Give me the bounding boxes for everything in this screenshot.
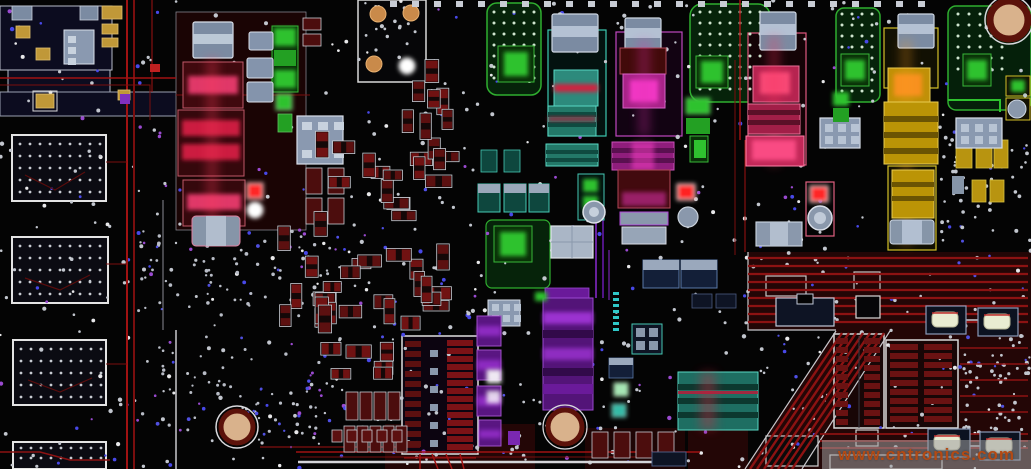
via-field [490,112,494,116]
via-field [777,335,779,337]
chip-pad [346,392,358,420]
via-field [998,403,1002,407]
via-field [616,22,619,25]
capacitor-top [529,184,549,193]
ic-pad [989,136,997,144]
via-field [713,119,716,122]
via-field [733,238,737,242]
via-field [1013,393,1015,395]
via-field [402,262,406,266]
via-field [383,28,386,31]
via-grid [29,269,32,272]
via-grid [503,22,506,25]
via-field [538,401,541,404]
via-field [635,388,638,391]
via-field [162,365,165,368]
via-field [194,416,197,419]
via-grid [709,33,712,36]
ic-pin-pad [836,356,848,362]
via-field [822,80,825,83]
ic-pin-pad [864,374,880,380]
via-field [942,239,945,242]
via-field [469,224,472,227]
via-field [940,220,944,224]
via-grid [513,22,516,25]
transistor-pad-green [274,70,296,88]
via-grid [89,143,92,146]
via-field [600,340,604,344]
via-field [684,145,687,148]
via-field [842,1,845,4]
via-field [301,257,305,261]
via-field [554,176,557,179]
via-field [149,272,153,276]
via-grid [99,245,102,248]
ic-pin-pad [864,365,880,371]
via-field [474,288,477,291]
via-field [991,354,994,357]
glow [477,326,501,336]
via-field [138,81,142,85]
via-grid [729,33,732,36]
capacitor-highlight [206,216,226,246]
via-grid [979,13,982,16]
chip-pad [362,430,372,442]
via-field [283,430,285,432]
silkscreen-mark [613,292,619,295]
th-pad [403,5,419,21]
via-field [42,307,46,311]
via-field [172,361,175,364]
via-field [209,281,212,284]
capacitor-highlight [760,24,796,35]
via-field [175,242,177,244]
via-field [404,347,407,350]
via-field [638,384,640,386]
via-grid [19,257,22,260]
via-field [236,271,240,275]
via-field [604,60,607,63]
via-field [324,91,328,95]
via-grid [19,167,22,170]
via-field [957,261,960,264]
via-grid [30,348,33,351]
via-grid [871,57,874,60]
via-field [977,205,980,208]
via-field [455,16,458,19]
via-field [240,337,243,340]
via-field [1018,341,1021,344]
chip-component-pad [393,212,401,220]
via-field [324,412,326,414]
ic-pin-pad [890,398,918,404]
via-field [163,182,166,185]
via-field [137,309,140,312]
via-field [992,301,995,304]
via-field [1014,190,1018,194]
via-grid [90,396,93,399]
silkscreen-mark [613,310,619,313]
chip-component-pad [421,114,430,123]
via-grid [69,245,72,248]
via-field [942,114,945,117]
via-field [268,414,272,418]
via-field [965,372,968,375]
via-grid [40,447,43,450]
ic-pin-pad [447,356,473,362]
glow [622,192,666,206]
via-field [156,422,160,426]
glow [477,360,501,370]
via-field [471,309,475,313]
via-grid [30,447,33,450]
via-grid [699,22,702,25]
ic-pin-pad [890,407,918,413]
via-field [432,266,435,269]
via-grid [968,46,971,49]
via-field [96,70,99,73]
via-field [178,188,181,191]
chip-component-pad [421,130,430,139]
via-field [328,247,331,250]
chip-component-pad [334,142,342,153]
via-field [964,418,967,421]
via-field [685,4,688,7]
via-field [771,0,775,3]
ic-pin-pad [864,356,880,362]
via-field [542,276,546,280]
ic-pad [851,124,859,132]
via-field [835,300,839,304]
via-field [172,352,174,354]
via-field [207,293,209,295]
via-field [622,341,626,345]
via-field [214,13,218,17]
via-grid [89,257,92,260]
via-field [466,311,468,313]
via-field [920,413,924,417]
via-field [222,366,225,369]
via-field [231,356,234,359]
via-grid [79,191,82,194]
via-field [823,247,827,251]
via-grid [749,33,752,36]
via-grid [70,457,73,460]
via-field [1025,359,1027,361]
via-field [797,200,800,203]
via-field [212,257,215,260]
via-field [687,65,690,68]
via-field [711,210,715,214]
via-field [801,104,805,108]
via-field [871,100,874,103]
via-field [791,186,793,188]
capacitor-highlight [770,222,788,246]
via-field [260,388,262,390]
chip-component-pad [372,256,380,266]
capacitor-stripe [543,384,593,394]
ic-pad [514,304,521,311]
via-grid [69,281,72,284]
chip-component-pad [414,94,424,101]
chip-component-pad [443,122,452,129]
ic-pin-pad [836,401,848,407]
ic-pin-pad [405,351,421,357]
via-grid [39,293,42,296]
via-field [742,334,746,338]
via-field [73,313,76,316]
via-field [35,465,38,468]
via-field [153,128,156,131]
test-pad [487,370,501,383]
ground-plane-navy [0,92,206,116]
via-field [875,22,878,25]
capacitor-cream [932,312,958,327]
via-field [438,196,441,199]
via-field [945,82,948,85]
via-field [441,201,444,204]
via-field [40,22,43,25]
via-grid [99,293,102,296]
via-field [298,411,302,415]
via-field [1027,367,1030,370]
chip-component-pad [385,368,391,378]
edge-pad [390,1,397,7]
via-grid [50,384,53,387]
via-field [136,64,140,68]
via-field [150,259,153,262]
via-field [833,66,836,69]
silkscreen-mark [613,298,619,301]
ic-pad [334,122,344,130]
via-field [278,422,281,425]
via-field [947,220,950,223]
via-field [141,412,144,415]
via-field [418,249,422,253]
via-grid [871,46,874,49]
via-grid [979,24,982,27]
ic-pad [825,136,833,144]
chip-component-pad [429,91,440,97]
via-field [239,395,242,398]
via-field [220,313,223,316]
via-field [452,206,455,209]
silkscreen-mark [613,304,619,307]
via-field [264,172,267,175]
via-field [990,427,993,430]
chip-component-pad [387,249,396,260]
chip-pad-yellow [972,180,986,202]
chip-component-pad [382,194,392,202]
light-streak [638,40,650,136]
via-grid [20,348,23,351]
via-field [116,442,120,446]
via-grid [841,46,844,49]
capacitor-top [478,184,500,193]
chip-component-pad [346,142,354,153]
via-field [274,418,277,421]
capacitor-cream [984,314,1010,329]
via-field [140,277,143,280]
capacitor-top [643,260,679,270]
via-grid [729,22,732,25]
transistor-pad-green [967,60,987,80]
via-field [1020,166,1023,169]
via-field [98,374,102,378]
via-field [996,417,999,420]
via-field [165,280,167,282]
via-field [490,74,493,77]
via-field [992,229,995,232]
via-field [440,390,444,394]
via-grid [30,384,33,387]
ic-pin-pad [836,365,848,371]
via-grid [523,11,526,14]
via-field [1009,337,1013,341]
ic-pin-pad [890,389,918,395]
via-field [318,443,320,445]
via-field [373,325,376,328]
capacitor-stripe [892,182,934,187]
via-field [354,285,357,288]
via-field [979,364,982,367]
via-grid [493,11,496,14]
ic-pad [649,341,658,350]
ic-pin-pad [405,411,421,417]
ic-pin-pad [405,381,421,387]
via-field [142,230,144,232]
via-field [234,299,237,302]
via-field [10,27,14,31]
ic-pin-pad [447,412,473,418]
via-grid [90,384,93,387]
via-grid [40,396,43,399]
transistor-pad-green [274,50,296,66]
chip-component-pad [415,171,424,179]
edge-pad [676,1,683,7]
via-field [144,307,146,309]
chip-pad [392,430,402,442]
via-field [444,82,447,85]
via-grid [60,372,63,375]
capacitor-stripe [884,116,938,122]
via-field [744,321,747,324]
via-field [311,372,314,375]
via-field [296,403,299,406]
ic-pad [636,341,645,350]
ic-pad [68,36,76,43]
via-field [783,350,787,354]
via-field [316,283,318,285]
ic-pin-pad [864,347,880,353]
capacitor-stripe [554,84,598,92]
ic-pad [975,136,983,144]
via-field [816,262,818,264]
via-field [783,343,785,345]
via-grid [60,447,63,450]
via-field [193,263,196,266]
via-field [301,249,304,252]
green-pad [686,98,710,114]
via-field [817,336,819,338]
via-grid [89,293,92,296]
ic-pin-pad [405,361,421,367]
via-field [961,210,965,214]
test-point [678,207,698,227]
ic-pin-pad [405,401,421,407]
via-field [464,165,467,168]
via-field [57,462,60,465]
capacitor-pink [748,104,800,134]
via-field [1025,152,1029,156]
via-field [940,178,943,181]
via-field [307,379,310,382]
via-grid [29,143,32,146]
via-grid [79,179,82,182]
edge-pad [434,1,441,7]
via-field [1012,344,1015,347]
via-grid [19,179,22,182]
via-field [677,317,681,321]
via-field [279,402,282,405]
via-field [139,241,141,243]
via-field [994,365,996,367]
via-field [257,402,260,405]
via-field [136,419,139,422]
via-field [123,281,126,284]
via-field [219,285,222,288]
via-field [701,185,704,188]
ic-pin-pad [864,419,880,425]
chip-pad [328,198,344,224]
via-field [139,244,143,248]
via-field [267,340,271,344]
chip-pad [303,34,321,46]
via-field [1019,334,1023,338]
via-field [938,126,941,129]
via-grid [69,257,72,260]
via-field [440,282,443,285]
via-grid [871,90,874,93]
via-grid [957,57,960,60]
via-field [424,384,428,388]
pad-gold [102,38,118,47]
chip-component-pad [279,241,290,249]
via-field [807,362,810,365]
via-field [314,427,317,430]
via-field [552,2,556,6]
via-field [964,353,967,356]
via-field [142,268,146,272]
chip-component-pad [375,296,381,308]
via-field [943,200,946,203]
via-field [1016,367,1019,370]
capacitor-stripe [748,110,800,115]
via-grid [851,35,854,38]
via-grid [89,155,92,158]
via-grid [699,44,702,47]
ic-pin-pad [924,380,952,386]
via-field [502,331,506,335]
via-field [147,56,150,59]
ic-pin-pad [924,371,952,377]
via-field [367,111,370,114]
via-grid [851,13,854,16]
via-field [326,269,328,271]
via-grid [871,24,874,27]
transistor-pad-green [274,28,296,46]
via-field [334,248,336,250]
